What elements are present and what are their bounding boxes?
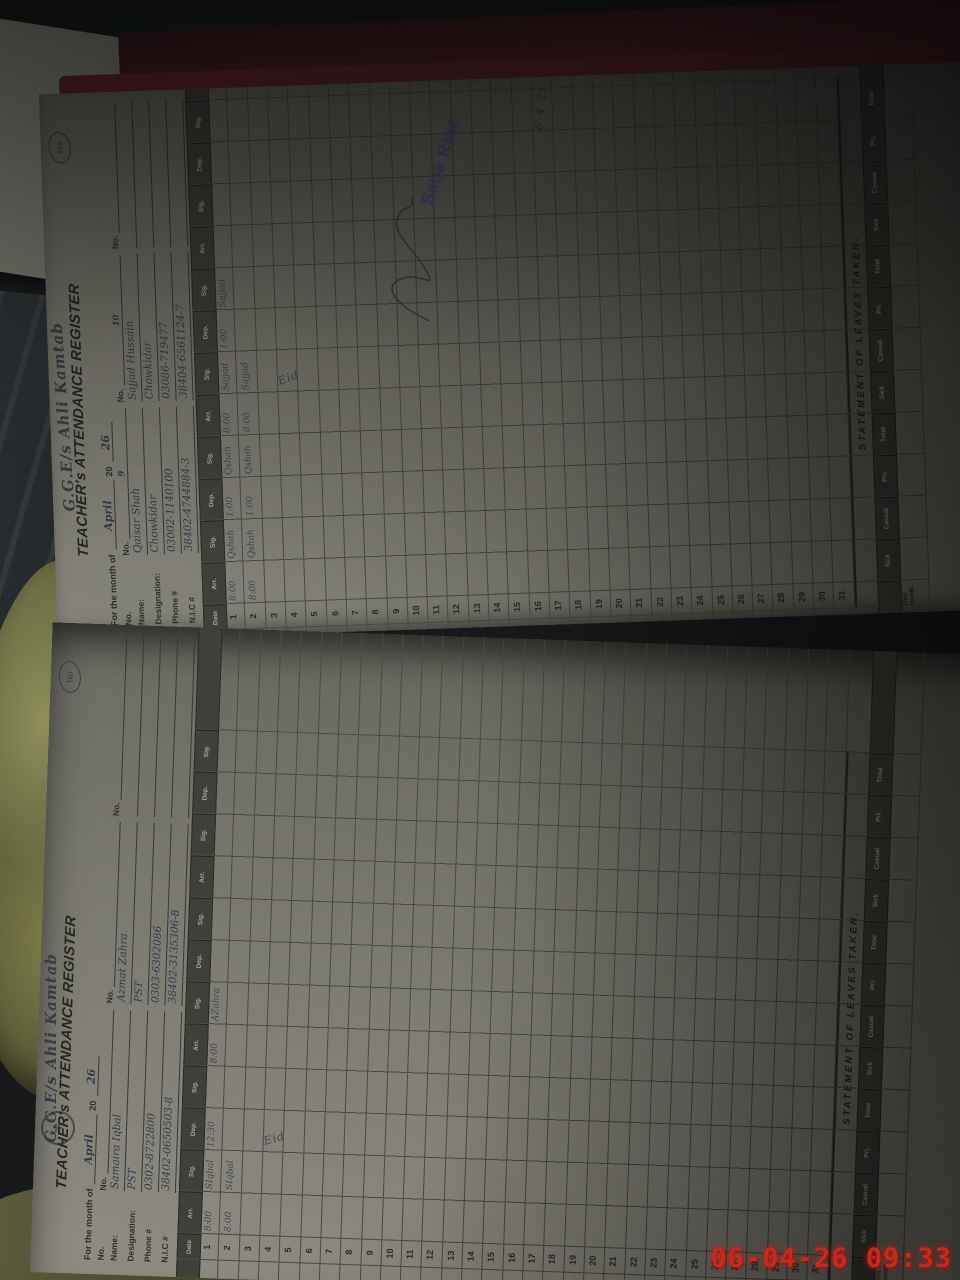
handwritten-entry: Qshah [246, 529, 257, 558]
date-number: 24 [668, 1250, 679, 1276]
grid-header-cell: Dep. [187, 939, 210, 982]
date-number: 3 [268, 602, 279, 628]
attendance-grid: 1234567891011121314151617181920212223242… [207, 66, 856, 636]
date-number: 22 [654, 589, 665, 615]
leaves-header-cell: Pri. [862, 963, 885, 1006]
date-number: 29 [796, 584, 807, 610]
date-number: 20 [613, 590, 624, 616]
date-number: 19 [567, 1247, 578, 1273]
page-inner-left: G.G.E/s Ahli KamtabTEACHER's ATTENDANCE … [30, 622, 960, 1280]
date-number: 14 [465, 1243, 476, 1269]
leaves-header-cell: Total [857, 1089, 880, 1132]
leaves-header-cell-spacer [878, 581, 901, 608]
month-field: April [100, 480, 116, 550]
date-number: 2 [222, 1235, 233, 1261]
leaves-header-cell: Pri. [862, 119, 885, 162]
attendance-grid: 1234567891011121314151617181920212223242… [198, 628, 850, 1280]
grid-header-cell: Arr. [196, 394, 219, 437]
leaves-header-cell: Casual [854, 1173, 877, 1216]
date-number: 16 [532, 593, 543, 619]
month-field: April [81, 1114, 97, 1184]
leaves-header-cell: Sick [877, 539, 900, 582]
month-prefix-label: For the month of [107, 554, 119, 626]
field-label: Designation: [148, 560, 167, 625]
grid-header-cell: Dep. [193, 771, 216, 814]
date-number: 4 [289, 602, 300, 628]
grid-header-cell: Sig. [186, 100, 209, 143]
grid-header-cell: Dep. [181, 1107, 204, 1150]
date-number: 9 [364, 1240, 375, 1266]
page-title: TEACHER's ATTENDANCE REGISTER [66, 283, 92, 558]
page-header: G.G.E/s Ahli KamtabTEACHER's ATTENDANCE … [30, 622, 199, 1277]
date-number: 6 [303, 1238, 314, 1264]
register-page-left: G.G.E/s Ahli KamtabTEACHER's ATTENDANCE … [30, 622, 960, 1280]
date-number: 13 [445, 1243, 456, 1269]
leaves-header-cell: Casual [860, 1005, 883, 1048]
grid-header-cell: Sig. [183, 1065, 206, 1108]
date-number: 26 [735, 586, 746, 612]
date-number: 9 [390, 598, 401, 624]
handwritten-entry: 1:00 [225, 497, 236, 518]
date-number: 20 [587, 1247, 598, 1273]
handwritten-entry: Sajjad [217, 279, 228, 308]
leaves-header-cell: Total [863, 921, 886, 964]
date-number: 23 [674, 588, 685, 614]
year-prefix-label: 20 [88, 1100, 98, 1110]
date-number: 5 [309, 601, 320, 627]
signature-squiggle [372, 188, 447, 330]
date-number: 4 [262, 1236, 273, 1262]
month-prefix-label: For the month of [82, 1188, 94, 1260]
grid-header-cell: Sig. [192, 813, 215, 856]
handwritten-entry: 8:00 [222, 413, 233, 434]
year-prefix-label: 20 [104, 466, 114, 476]
date-number: 18 [573, 592, 584, 618]
date-number: 7 [350, 599, 361, 625]
grid-header-cell: Sig. [198, 436, 221, 479]
leaves-header-cell: Total [867, 245, 890, 288]
date-number: 18 [547, 1246, 558, 1272]
handwritten-entry: SIqbal [225, 1160, 236, 1190]
handwritten-entry: Qshah [226, 530, 237, 559]
year-field: 26 [98, 422, 113, 462]
leaves-header-cell: Total [861, 77, 884, 120]
date-number: 2 [248, 603, 259, 629]
leaves-header-cell: Casual [864, 161, 887, 204]
date-number: 3 [242, 1235, 253, 1261]
handwritten-entry: SIqbal [205, 1160, 216, 1190]
grid-header-cell-date: Date [178, 1233, 201, 1260]
date-number: 23 [648, 1250, 659, 1276]
leaves-header-cell: Sick [859, 1047, 882, 1090]
date-number: 21 [634, 590, 645, 616]
date-number: 10 [410, 597, 421, 623]
date-number: 6 [329, 600, 340, 626]
date-number: 11 [431, 597, 442, 623]
leaves-header-cell: Sick [871, 371, 894, 414]
date-number: 17 [526, 1245, 537, 1271]
grid-header-cell: Arr. [190, 855, 213, 898]
grid-header-cell: Sig. [195, 729, 218, 772]
handwritten-entry: 8:00 [209, 1043, 220, 1064]
handwritten-entry: Sajjad [241, 362, 252, 391]
summary-row-label: This month. [901, 574, 916, 606]
page-inner-right: G.G.E/s Ahli KamtabTEACHER's ATTENDANCE … [39, 61, 960, 642]
date-number: 1 [228, 604, 239, 630]
photo-scene: G.G.E/s Ahli KamtabTEACHER's ATTENDANCE … [0, 0, 960, 1280]
date-number: 7 [323, 1238, 334, 1264]
year-field: 26 [84, 1056, 99, 1096]
grid-header-cell: Sig. [180, 1149, 203, 1192]
handwritten-entry: 1:00 [245, 496, 256, 517]
handwritten-entry: AZahra [211, 988, 222, 1022]
leaves-header-cell: Sick [865, 879, 888, 922]
handwritten-entry: Sajjad [220, 363, 231, 392]
date-number: 24 [695, 587, 706, 613]
date-number: 8 [344, 1239, 355, 1265]
field-label: N.I.C # [182, 559, 201, 624]
leaves-header-cell: Pri. [868, 287, 891, 330]
date-number: 12 [425, 1242, 436, 1268]
grid-header-cell: Arr. [178, 1191, 201, 1234]
page-header: G.G.E/s Ahli KamtabTEACHER's ATTENDANCE … [39, 89, 204, 642]
date-number: 25 [689, 1251, 700, 1277]
grid-header-cell: Sig. [192, 268, 215, 311]
date-number: 27 [756, 585, 767, 611]
leaves-header-cell: Casual [875, 497, 898, 540]
grid-header-cell: Arr. [184, 1023, 207, 1066]
leaves-header-cell: Pri. [868, 795, 891, 838]
leaves-header-cell: Pri. [856, 1131, 879, 1174]
grid-header-cell: Arr. [191, 226, 214, 269]
grid-header-cell: Arr. [202, 562, 225, 605]
handwritten-entry: 8:00 [228, 580, 239, 601]
date-number: 10 [384, 1240, 395, 1266]
date-number: 30 [816, 583, 827, 609]
date-number: 28 [776, 585, 787, 611]
register-page-right: G.G.E/s Ahli KamtabTEACHER's ATTENDANCE … [39, 61, 960, 642]
date-number: 5 [283, 1237, 294, 1263]
date-number: 15 [512, 594, 523, 620]
date-number: 22 [628, 1249, 639, 1275]
date-number: 15 [486, 1244, 497, 1270]
handwritten-entry: 8:00 [224, 1212, 235, 1233]
date-number: 25 [715, 587, 726, 613]
leaves-header-cell: Sick [865, 203, 888, 246]
grid-header-cell: Dep. [194, 310, 217, 353]
handwritten-entry: 12:30 [206, 1121, 217, 1147]
date-number: 13 [471, 595, 482, 621]
date-number: 12 [451, 596, 462, 622]
leaves-header-cell: Pri. [874, 455, 897, 498]
handwritten-entry: 8:00 [204, 1211, 215, 1232]
grid-header-cell: Sig. [186, 981, 209, 1024]
date-number: 16 [506, 1245, 517, 1271]
date-number: 19 [593, 591, 604, 617]
date-number: 31 [837, 582, 848, 608]
staff-info-table: No.No.9No.10No.Name:Qaisar ShahSajjad Hu… [104, 99, 201, 625]
grid-header-cell: Sig. [201, 520, 224, 563]
leaves-header-cell: Total [869, 753, 892, 796]
date-number: 14 [492, 594, 503, 620]
date-number: 11 [405, 1241, 416, 1267]
circled-no-mark: No [46, 130, 73, 165]
date-number: 8 [370, 599, 381, 625]
leaves-header-cell: Total [872, 413, 895, 456]
grid-header-cell: Dep. [188, 142, 211, 185]
camera-timestamp: 06-04-26 09:33 [710, 1243, 952, 1274]
handwritten-entry: 8:00 [248, 580, 259, 601]
handwritten-entry: 8:00 [242, 412, 253, 433]
grid-header-cell: Sig. [189, 897, 212, 940]
field-label: N.I.C # [156, 1198, 175, 1263]
date-number: 1 [202, 1234, 213, 1260]
handwritten-entry: Qshah [244, 445, 255, 474]
grid-header-cell: Sig. [189, 184, 212, 227]
grid-header-cell: Sig. [195, 352, 218, 395]
grid-header-cell: Dep. [199, 478, 222, 521]
handwritten-entry: Qshah [223, 446, 234, 475]
circled-no-mark: No [57, 660, 82, 694]
date-number: 21 [608, 1248, 619, 1274]
handwritten-entry: 1:00 [219, 329, 230, 350]
leaves-header-cell: Casual [866, 837, 889, 880]
date-number: 17 [553, 592, 564, 618]
leaves-header-cell: Casual [869, 329, 892, 372]
